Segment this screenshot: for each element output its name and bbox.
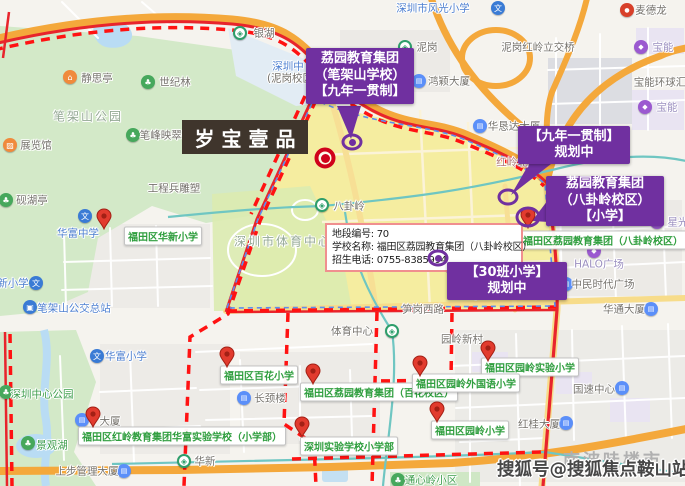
callout-text-line: 荔园教育集团 xyxy=(566,176,644,193)
info-value: 福田区荔园教育集团（八卦岭校区） xyxy=(377,242,532,253)
pin-icon xyxy=(85,406,101,428)
callout-text-line: （八卦岭校区） xyxy=(559,193,650,210)
annotation-callout-c4: 【30班小学】规划中 xyxy=(447,262,567,300)
callout-text-line: （笔架山学校） xyxy=(314,68,405,85)
info-label: 学校名称: xyxy=(332,242,377,253)
info-row: 学校名称: 福田区荔园教育集团（八卦岭校区） xyxy=(332,241,516,254)
callout-text-line: 【九年一贯制】 xyxy=(528,129,619,146)
sohu-watermark: 搜狐号@搜狐焦点鞍山站 xyxy=(497,456,685,481)
info-value: 70 xyxy=(377,229,389,240)
pin-icon xyxy=(219,346,235,368)
highlight-ring-marker[interactable] xyxy=(342,134,363,151)
annotation-callout-c1: 荔园教育集团（笔架山学校）【九年一贯制】 xyxy=(306,48,414,104)
pin-icon xyxy=(412,355,428,377)
info-label: 地段编号: xyxy=(332,229,377,240)
target-dot-icon xyxy=(321,154,330,163)
callout-text-line: 【小学】 xyxy=(579,209,631,226)
pin-icon xyxy=(294,416,310,438)
school-district-label: 福田区荔园教育集团（八卦岭校区） xyxy=(519,231,685,250)
callout-text-line: 【30班小学】 xyxy=(465,265,548,282)
callout-text-line: 规划中 xyxy=(487,281,526,298)
callout-text-line: 荔园教育集团 xyxy=(321,51,399,68)
pin-icon xyxy=(429,401,445,423)
highlight-ring-marker[interactable] xyxy=(516,207,541,228)
project-name-label: 岁宝壹品 xyxy=(182,120,308,154)
highlight-ring-marker[interactable] xyxy=(498,189,519,206)
callout-text-line: 【九年一贯制】 xyxy=(314,84,405,101)
school-district-label: 福田区百花小学 xyxy=(220,366,298,385)
school-district-label: 深圳实验学校小学部 xyxy=(300,437,398,456)
ring-dot-icon xyxy=(349,139,356,146)
map-canvas[interactable]: 文深圳市风光小学◈银湖◈泥岗泥岗红岭立交桥●麦德龙◆宝能宝能环球汇◆宝能▤华恳达… xyxy=(0,0,685,486)
school-district-label: 福田区园岭外国语小学 xyxy=(412,374,520,393)
ring-dot-icon xyxy=(435,255,442,262)
pin-icon xyxy=(480,340,496,362)
callout-text-line: 规划中 xyxy=(554,145,593,162)
annotation-callout-c2: 【九年一贯制】规划中 xyxy=(518,126,630,164)
info-row: 地段编号: 70 xyxy=(332,228,516,241)
project-target-marker[interactable] xyxy=(315,148,336,169)
info-label: 招生电话: xyxy=(332,255,377,266)
highlight-ring-marker[interactable] xyxy=(428,250,449,267)
annotation-layer: 地段编号: 70学校名称: 福田区荔园教育集团（八卦岭校区）招生电话: 0755… xyxy=(0,0,685,486)
school-district-label: 福田区红岭教育集团华富实验学校（小学部） xyxy=(78,427,286,446)
annotation-callout-c3: 荔园教育集团（八卦岭校区）【小学】 xyxy=(546,176,664,226)
pin-icon xyxy=(96,208,112,230)
school-district-label: 福田区华新小学 xyxy=(124,227,202,246)
pin-icon xyxy=(305,363,321,385)
school-district-label: 福田区园岭小学 xyxy=(431,421,509,440)
